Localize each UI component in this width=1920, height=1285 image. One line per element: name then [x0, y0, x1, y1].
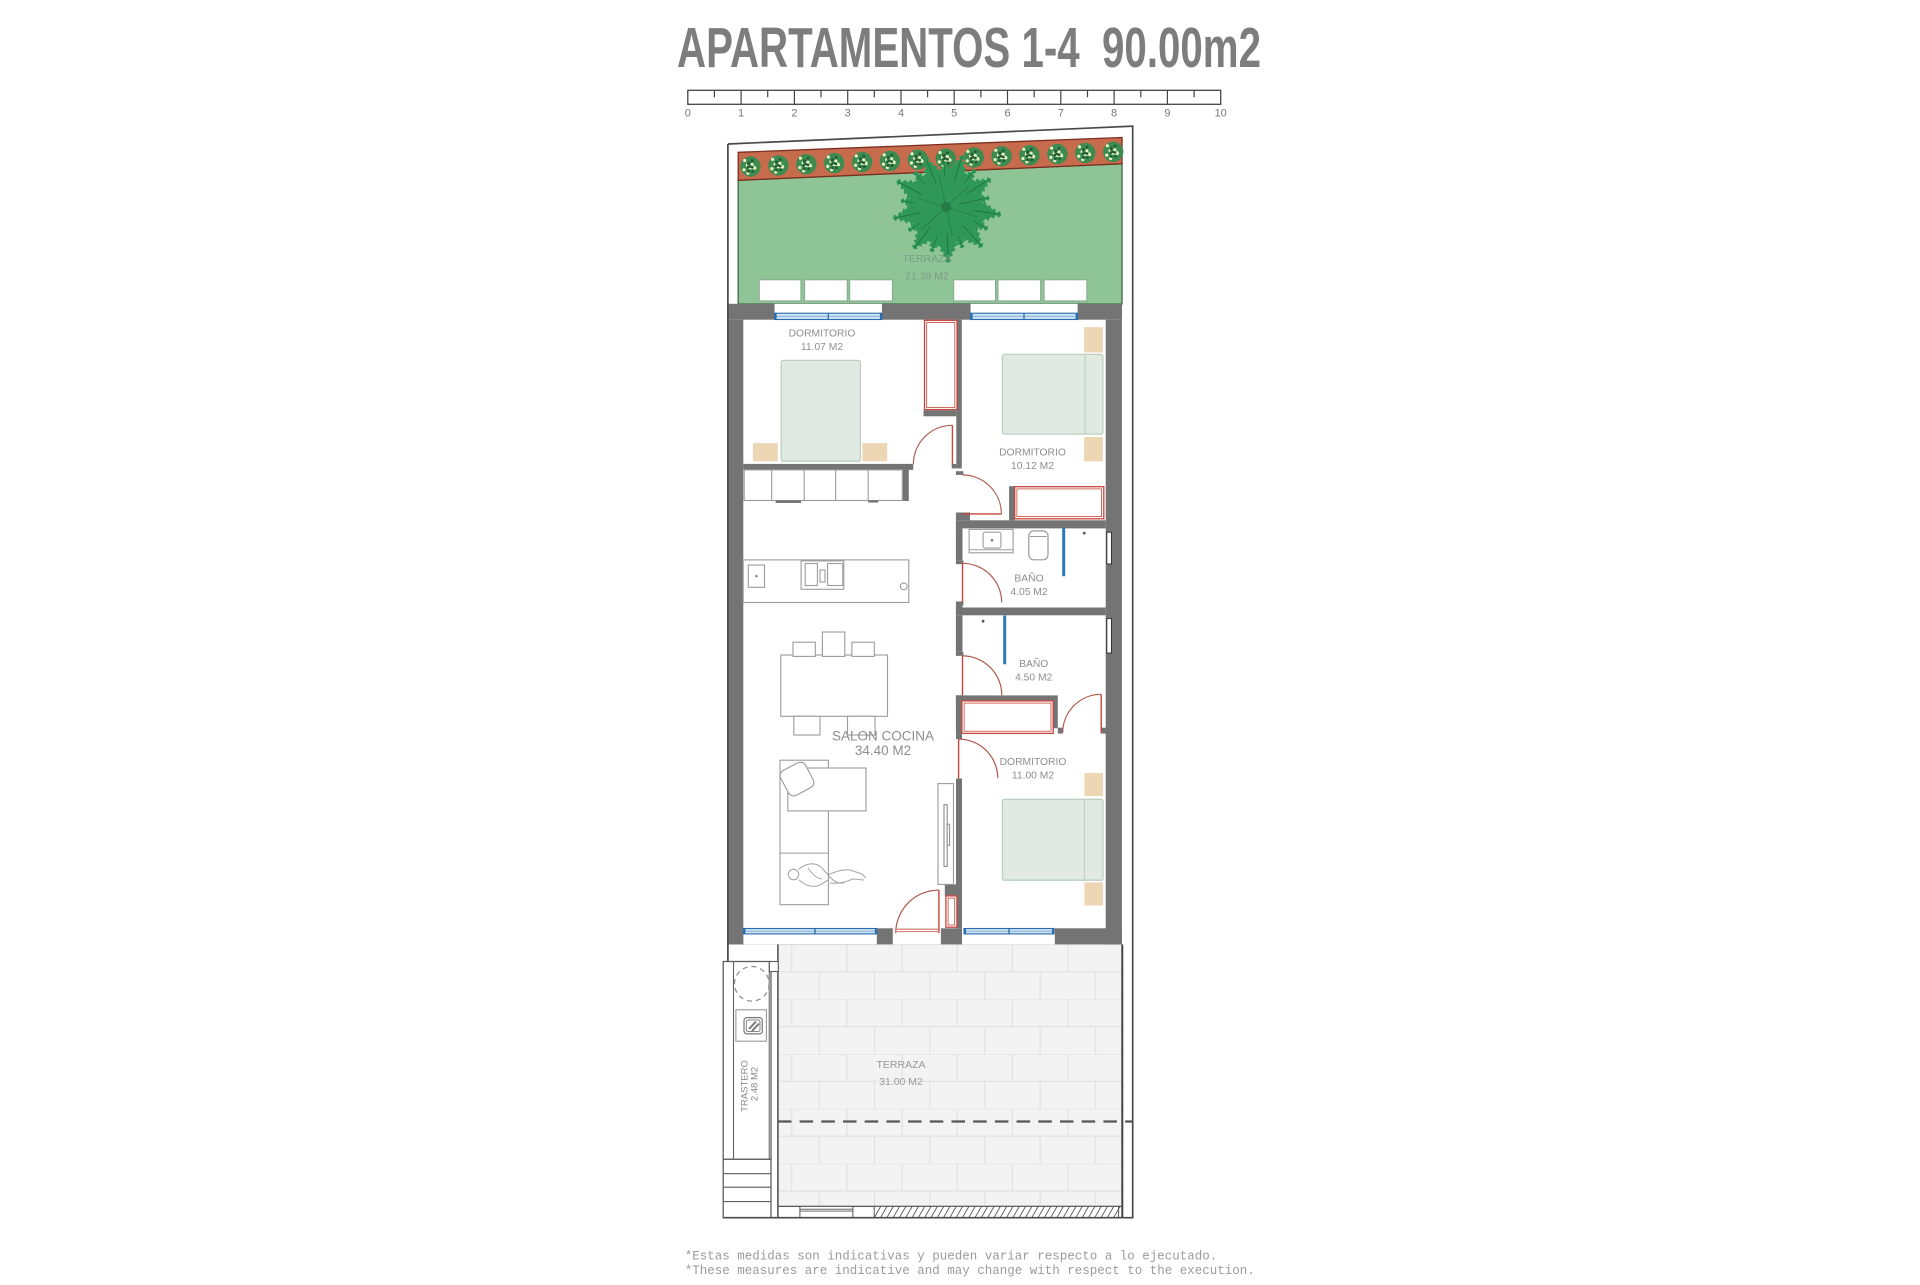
svg-text:APARTAMENTOS 1-4 90.00m2: APARTAMENTOS 1-4 90.00m2: [677, 16, 1261, 80]
svg-text:4.50 M2: 4.50 M2: [1015, 672, 1052, 683]
svg-text:BAÑO: BAÑO: [1019, 657, 1048, 670]
svg-text:5: 5: [951, 108, 957, 120]
svg-text:10: 10: [1215, 108, 1227, 120]
svg-text:TERRAZA: TERRAZA: [902, 253, 951, 265]
svg-text:DORMITORIO: DORMITORIO: [789, 328, 856, 339]
svg-text:SALON COCINA: SALON COCINA: [832, 728, 934, 743]
svg-text:8: 8: [1111, 108, 1117, 120]
svg-text:0: 0: [685, 108, 691, 120]
svg-text:9: 9: [1164, 108, 1170, 120]
svg-text:21.38 M2: 21.38 M2: [905, 271, 949, 283]
svg-text:11.00 M2: 11.00 M2: [1012, 770, 1054, 781]
svg-text:31.00 M2: 31.00 M2: [879, 1076, 923, 1088]
svg-text:TERRAZA: TERRAZA: [876, 1059, 925, 1071]
svg-text:TRASTERO: TRASTERO: [740, 1060, 751, 1112]
svg-text:7: 7: [1058, 108, 1064, 120]
svg-text:2: 2: [791, 108, 797, 120]
svg-text:4: 4: [898, 108, 904, 120]
svg-text:*Estas medidas son indicativas: *Estas medidas son indicativas y pueden …: [685, 1250, 1218, 1264]
svg-text:DORMITORIO: DORMITORIO: [999, 448, 1066, 459]
svg-text:11.07 M2: 11.07 M2: [801, 342, 843, 353]
svg-text:2.48 M2: 2.48 M2: [750, 1067, 761, 1101]
svg-text:10.12 M2: 10.12 M2: [1011, 461, 1054, 472]
svg-text:6: 6: [1004, 108, 1010, 120]
svg-text:34.40 M2: 34.40 M2: [855, 743, 911, 758]
svg-text:1: 1: [738, 108, 744, 120]
svg-text:BAÑO: BAÑO: [1014, 572, 1043, 585]
svg-text:*These measures are indicative: *These measures are indicative and may c…: [685, 1264, 1255, 1278]
svg-text:4.05 M2: 4.05 M2: [1010, 587, 1047, 598]
svg-text:3: 3: [845, 108, 851, 120]
svg-text:DORMITORIO: DORMITORIO: [1000, 757, 1067, 768]
